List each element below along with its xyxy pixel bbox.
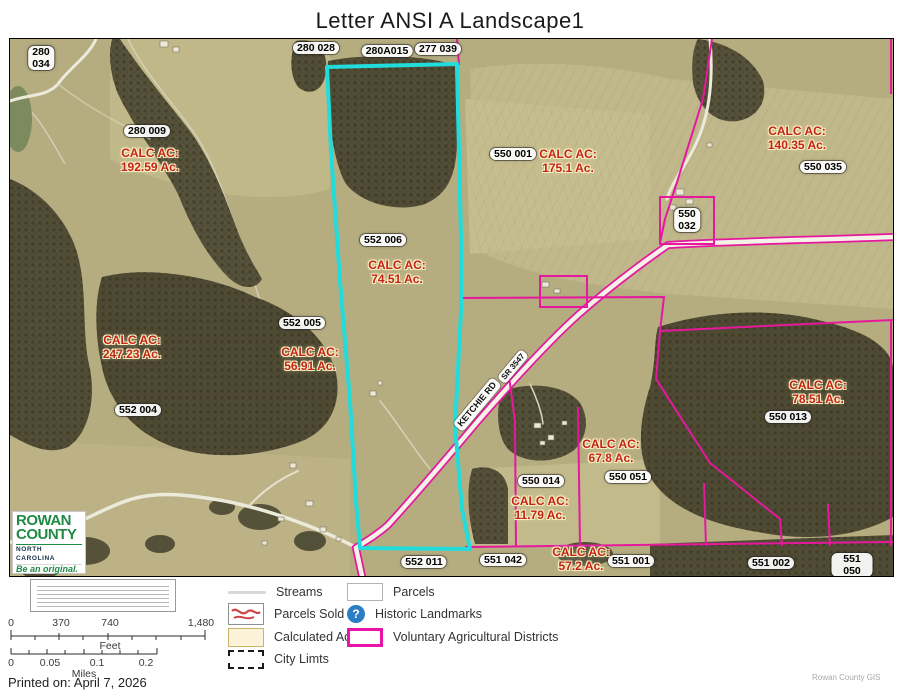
calc-prefix: CALC AC: [103,334,161,348]
feet-tick-0: 0 [8,617,14,629]
question-mark-icon: ? [347,605,365,623]
legend-label: Streams [276,585,323,599]
parcel-label-552-011: 552 011 [401,556,446,568]
calc-prefix: CALC AC: [789,379,847,393]
calc-ac-label-550-014: CALC AC: 11.79 Ac. [511,495,569,523]
city-limits-swatch-icon [228,650,264,669]
calc-ac-label-550-051: CALC AC: 67.8 Ac. [582,438,640,466]
calc-prefix: CALC AC: [121,147,179,161]
feet-bar [11,630,205,640]
calc-value: 57.2 Ac. [552,560,610,574]
parcel-label-277-039: 277 039 [415,43,461,55]
map-aerial-imagery [10,39,893,576]
parcel-label-552-004: 552 004 [115,404,161,416]
parcel-label-280-034: 280 034 [28,46,54,70]
miles-bar [11,648,157,654]
legend-item-calculated-ac: Calculated Ac [228,626,350,648]
print-page: Letter ANSI A Landscape1 [0,0,900,695]
parcel-label-280-028: 280 028 [293,42,339,54]
calc-prefix: CALC AC: [552,546,610,560]
calc-prefix: CALC AC: [582,438,640,452]
calc-ac-label-552-006: CALC AC: 74.51 Ac. [368,259,426,287]
calc-ac-label-280-009: CALC AC: 192.59 Ac. [121,147,179,175]
parcel-label-550-014: 550 014 [518,475,564,487]
parcel-label-280-009: 280 009 [124,125,170,137]
feet-tick-740: 740 [101,617,119,629]
calc-value: 78.51 Ac. [789,393,847,407]
parcel-label-550-013: 550 013 [765,411,811,423]
parcel-label-550-051: 550 051 [605,471,651,483]
rowan-county-logo: ROWAN COUNTY NORTH CAROLINA Be an origin… [12,511,86,574]
parcel-label-550-035: 550 035 [800,161,846,173]
legend-item-streams: Streams [228,581,323,603]
legend-item-parcels: Parcels [347,581,435,603]
map-area: 280 034 280 028 280A015 277 039 280 009 … [9,38,894,577]
legend-item-historic-landmarks: ? Historic Landmarks [338,603,482,625]
calc-value: 175.1 Ac. [539,162,597,176]
logo-county-text: COUNTY [16,528,82,542]
parcel-label-550-001: 550 001 [490,148,536,160]
page-title: Letter ANSI A Landscape1 [0,8,900,34]
parcel-label-551-001: 551 001 [608,555,654,567]
feet-unit-label: Feet [99,640,120,652]
legend-label: Historic Landmarks [375,607,482,621]
logo-state-text: NORTH CAROLINA [16,544,82,565]
calc-value: 11.79 Ac. [511,509,569,523]
legend-label: Voluntary Agricultural Districts [393,630,558,644]
calc-prefix: CALC AC: [768,125,826,139]
calculated-ac-swatch-icon [228,628,264,647]
calc-ac-label-550-001: CALC AC: 175.1 Ac. [539,148,597,176]
legend-label: Parcels Sold [274,607,344,621]
calc-value: 74.51 Ac. [368,273,426,287]
calc-ac-label-247: CALC AC: 247.23 Ac. [103,334,161,362]
legend-label: Calculated Ac [274,630,350,644]
legend-item-city-limits: City Limts [228,648,329,670]
logo-tagline-text: Be an original. [16,564,82,575]
calc-value: 56.91 Ac. [281,360,339,374]
parcels-swatch-icon [347,583,383,601]
miles-tick-02: 0.2 [139,657,154,669]
miles-tick-005: 0.05 [40,657,61,669]
parcels-sold-swatch-icon [228,603,264,625]
calc-prefix: CALC AC: [539,148,597,162]
calc-ac-label-552-005: CALC AC: 56.91 Ac. [281,346,339,374]
calc-ac-label-551: CALC AC: 57.2 Ac. [552,546,610,574]
calc-value: 192.59 Ac. [121,161,179,175]
calc-ac-label-550-035: CALC AC: 140.35 Ac. [768,125,826,153]
map-attribution: Rowan County GIS [812,673,880,682]
legend-item-vad: Voluntary Agricultural Districts [347,626,558,648]
scale-bar: 0 370 740 1,480 Feet 0 0.05 0.1 0.2 Mile… [4,594,216,678]
parcel-label-551-042: 551 042 [480,554,526,566]
feet-tick-1480: 1,480 [188,617,214,629]
parcel-label-550-032: 550 032 [674,208,700,232]
calc-value: 247.23 Ac. [103,348,161,362]
parcel-label-280A015: 280A015 [362,45,413,57]
calc-prefix: CALC AC: [511,495,569,509]
legend-label: Parcels [393,585,435,599]
calc-ac-label-550-013: CALC AC: 78.51 Ac. [789,379,847,407]
vad-swatch-icon [347,628,383,647]
parcel-label-551-050: 551 050 [832,553,873,577]
parcel-label-552-005: 552 005 [279,317,325,329]
calc-value: 67.8 Ac. [582,452,640,466]
parcel-label-551-002: 551 002 [748,557,794,569]
calc-value: 140.35 Ac. [768,139,826,153]
streams-swatch-icon [228,591,266,594]
legend-label: City Limts [274,652,329,666]
legend-item-parcels-sold: Parcels Sold [228,603,344,625]
feet-tick-370: 370 [52,617,70,629]
parcel-label-552-006: 552 006 [360,234,406,246]
calc-prefix: CALC AC: [281,346,339,360]
printed-on-date: Printed on: April 7, 2026 [8,675,147,690]
calc-prefix: CALC AC: [368,259,426,273]
miles-tick-0: 0 [8,657,14,669]
